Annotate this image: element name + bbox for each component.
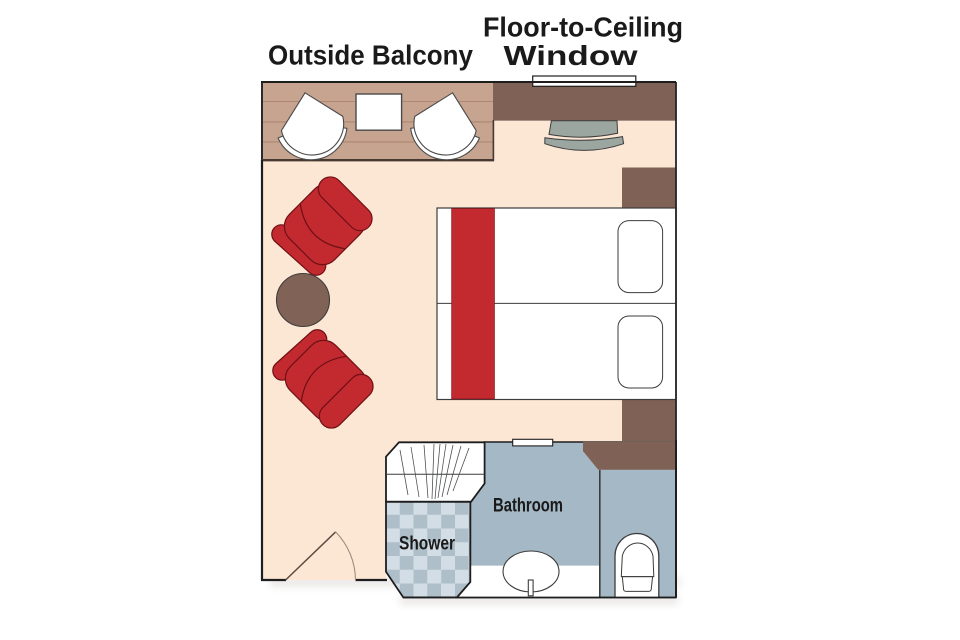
svg-text:Window: Window — [504, 40, 638, 71]
svg-text:Bathroom: Bathroom — [493, 496, 563, 517]
svg-text:Floor-to-Ceiling: Floor-to-Ceiling — [483, 11, 683, 42]
svg-text:Outside Balcony: Outside Balcony — [268, 40, 473, 71]
svg-text:Shower: Shower — [399, 533, 455, 555]
